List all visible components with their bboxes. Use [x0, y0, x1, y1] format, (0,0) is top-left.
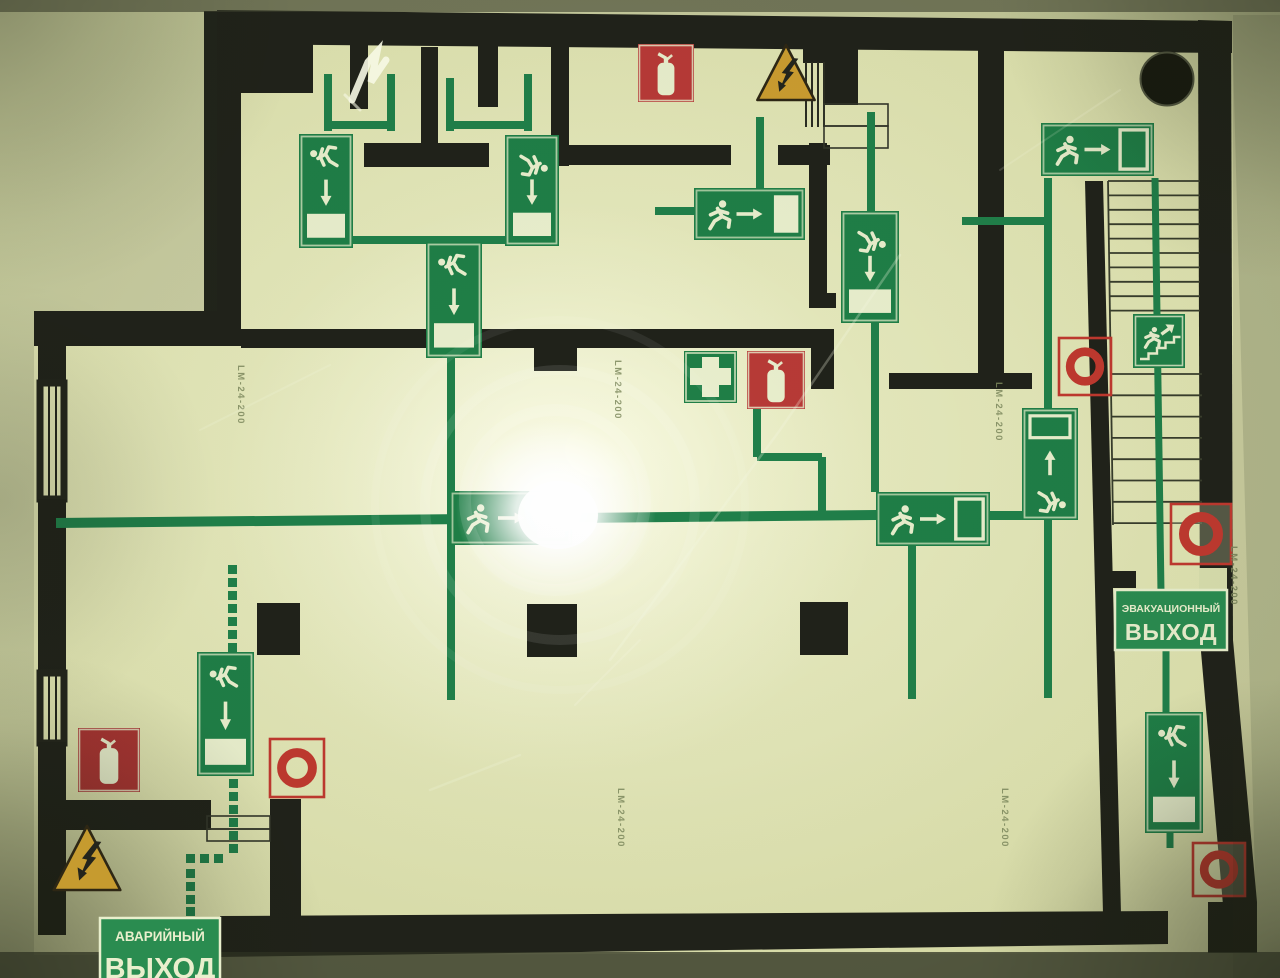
svg-text:ВЫХОД: ВЫХОД	[105, 953, 216, 978]
svg-text:АВАРИЙНЫЙ: АВАРИЙНЫЙ	[115, 929, 205, 944]
